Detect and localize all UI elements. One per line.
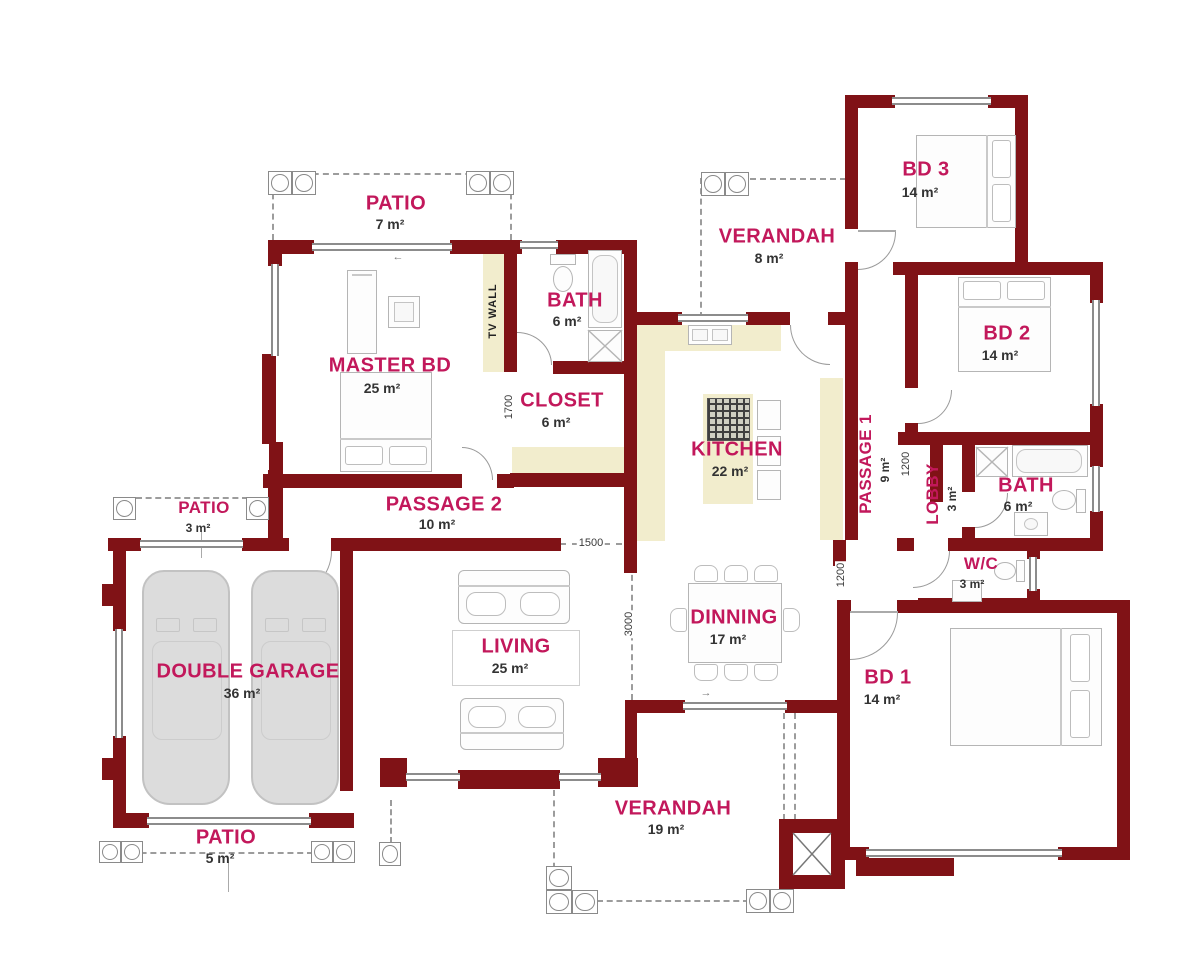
wall bbox=[905, 275, 918, 388]
wall bbox=[102, 584, 113, 606]
wall bbox=[309, 813, 354, 828]
bed-line bbox=[986, 135, 988, 228]
wall bbox=[897, 600, 1130, 613]
car-roof bbox=[152, 641, 221, 740]
stove-icon bbox=[707, 398, 750, 441]
wall bbox=[1090, 445, 1103, 467]
door-leaf bbox=[858, 230, 896, 232]
bathtub-inner bbox=[1016, 449, 1082, 473]
column-post bbox=[746, 889, 770, 913]
dimension-label: 1200 bbox=[900, 450, 912, 478]
toilet-icon bbox=[553, 266, 573, 292]
room-label-patio-bottom: PATIO bbox=[196, 827, 256, 850]
basin-bowl bbox=[1024, 518, 1038, 530]
window bbox=[406, 773, 460, 781]
wardrobe-line bbox=[352, 274, 372, 276]
wall bbox=[458, 770, 560, 789]
verandah-top-boundary bbox=[700, 178, 702, 318]
wall bbox=[746, 312, 790, 325]
door-arc bbox=[462, 447, 493, 480]
room-label-verandah-top: VERANDAH bbox=[719, 226, 836, 249]
wall bbox=[113, 551, 126, 631]
car bbox=[251, 570, 339, 805]
wall bbox=[1117, 600, 1130, 860]
wall bbox=[553, 361, 637, 374]
kitchen-counter-right bbox=[820, 378, 843, 540]
kitchen-counter-left bbox=[637, 351, 665, 541]
wall bbox=[1090, 275, 1103, 303]
room-area-lobby: 3 m² bbox=[945, 487, 959, 512]
room-area-bath2: 6 m² bbox=[1004, 498, 1033, 514]
column-post bbox=[246, 497, 269, 520]
wall bbox=[504, 252, 517, 372]
room-area-bd1: 14 m² bbox=[864, 691, 901, 707]
pillow bbox=[1007, 281, 1045, 300]
room-label-passage1: PASSAGE 1 bbox=[856, 414, 876, 514]
chair bbox=[694, 565, 718, 582]
sink-bowl bbox=[712, 329, 728, 341]
room-label-bd2: BD 2 bbox=[983, 323, 1030, 346]
wall bbox=[242, 538, 289, 551]
car-vent bbox=[156, 618, 180, 632]
window bbox=[1092, 466, 1100, 512]
sofa-cushion bbox=[520, 592, 560, 616]
arrow-left-icon: ← bbox=[393, 251, 404, 263]
chair bbox=[724, 664, 748, 681]
wall bbox=[845, 262, 858, 325]
column-post bbox=[770, 889, 794, 913]
chair bbox=[670, 608, 687, 632]
car bbox=[142, 570, 230, 805]
window bbox=[559, 773, 601, 781]
chair bbox=[724, 565, 748, 582]
wall bbox=[102, 758, 113, 780]
window bbox=[115, 629, 123, 738]
window bbox=[520, 241, 558, 249]
verandah-bottom-boundary bbox=[783, 713, 785, 820]
dim-1500-ext bbox=[604, 543, 622, 545]
window bbox=[678, 314, 748, 322]
wall bbox=[893, 262, 1103, 275]
room-area-verandah-bottom: 19 m² bbox=[648, 821, 685, 837]
room-label-bd3: BD 3 bbox=[902, 159, 949, 182]
wall bbox=[331, 538, 561, 551]
wall bbox=[948, 538, 1103, 551]
room-label-wc: W/C bbox=[964, 554, 998, 574]
wall bbox=[625, 312, 682, 325]
pillow bbox=[992, 140, 1011, 178]
chair bbox=[694, 664, 718, 681]
room-area-patio-top: 7 m² bbox=[376, 216, 405, 232]
sink-bowl bbox=[692, 329, 708, 341]
door-arc bbox=[858, 232, 896, 270]
window bbox=[312, 243, 452, 251]
room-label-passage2: PASSAGE 2 bbox=[386, 494, 503, 517]
column-post bbox=[292, 171, 316, 195]
wardrobe bbox=[347, 270, 377, 354]
wall bbox=[624, 240, 637, 573]
pillow bbox=[992, 184, 1011, 222]
verandah-bottom-boundary bbox=[794, 713, 796, 820]
wall bbox=[898, 432, 1103, 445]
door-arc bbox=[850, 613, 898, 660]
chair bbox=[754, 565, 778, 582]
room-area-living: 25 m² bbox=[492, 660, 529, 676]
window bbox=[271, 264, 279, 356]
room-label-garage: DOUBLE GARAGE bbox=[157, 661, 340, 684]
window bbox=[866, 849, 1062, 857]
dimension-label: 1500 bbox=[577, 537, 605, 549]
dim-1500-ext bbox=[560, 543, 578, 545]
column-post bbox=[572, 890, 598, 914]
closet-wardrobe bbox=[512, 447, 627, 473]
column-post bbox=[379, 842, 401, 866]
window bbox=[1092, 300, 1100, 406]
wall bbox=[268, 240, 314, 254]
floor-plan: ← → bbox=[0, 0, 1200, 971]
car-vent bbox=[302, 618, 326, 632]
room-label-living: LIVING bbox=[481, 636, 550, 659]
wall bbox=[113, 813, 149, 828]
chair bbox=[783, 608, 800, 632]
column-post bbox=[701, 172, 725, 196]
room-area-bath-master: 6 m² bbox=[553, 313, 582, 329]
wall bbox=[845, 95, 858, 229]
sofa-cushion bbox=[518, 706, 556, 728]
column-post bbox=[725, 172, 749, 196]
dimension-label: 3000 bbox=[623, 610, 635, 638]
bed-line bbox=[958, 306, 1051, 308]
room-area-patio-left: 3 m² bbox=[186, 521, 211, 535]
room-area-garage: 36 m² bbox=[224, 685, 261, 701]
wall bbox=[108, 538, 141, 551]
column-post bbox=[466, 171, 490, 195]
wall bbox=[897, 538, 914, 551]
window bbox=[1029, 557, 1037, 591]
car-roof bbox=[261, 641, 330, 740]
pillow bbox=[1070, 690, 1090, 738]
pillow bbox=[345, 446, 383, 465]
sofa-line bbox=[458, 585, 570, 587]
column-post bbox=[490, 171, 514, 195]
room-label-dinning: DINNING bbox=[690, 607, 777, 630]
sofa-cushion bbox=[466, 592, 506, 616]
room-label-closet: CLOSET bbox=[520, 390, 604, 413]
door-arc bbox=[790, 325, 830, 365]
shower-x-icon bbox=[588, 330, 622, 362]
room-label-verandah-bottom: VERANDAH bbox=[615, 798, 732, 821]
wall bbox=[962, 445, 975, 492]
dresser-inner bbox=[394, 302, 414, 322]
wall bbox=[625, 711, 637, 771]
pillow bbox=[389, 446, 427, 465]
room-area-verandah-top: 8 m² bbox=[755, 250, 784, 266]
chair bbox=[754, 664, 778, 681]
toilet-icon bbox=[1052, 490, 1076, 510]
room-area-master-bd: 25 m² bbox=[364, 380, 401, 396]
column-post bbox=[113, 497, 136, 520]
wall bbox=[1058, 847, 1130, 860]
column-post bbox=[99, 841, 121, 863]
door-arc bbox=[913, 551, 950, 588]
room-area-kitchen: 22 m² bbox=[712, 463, 749, 479]
arrow-right-icon: → bbox=[701, 687, 712, 699]
window bbox=[892, 97, 991, 105]
room-label-patio-top: PATIO bbox=[366, 193, 426, 216]
bed-line bbox=[340, 438, 432, 440]
column-post bbox=[268, 171, 292, 195]
wall bbox=[1015, 95, 1028, 275]
room-label-master-bd: MASTER BD bbox=[329, 355, 452, 378]
patio-bottom-tick bbox=[228, 862, 229, 892]
pillow bbox=[963, 281, 1001, 300]
verandah-bottom-boundary bbox=[390, 800, 392, 843]
verandah-bottom-boundary bbox=[597, 900, 749, 902]
room-area-patio-bottom: 5 m² bbox=[206, 850, 235, 866]
room-label-bd1: BD 1 bbox=[864, 667, 911, 690]
room-area-wc: 3 m² bbox=[960, 577, 985, 591]
room-area-closet: 6 m² bbox=[542, 414, 571, 430]
toilet-icon bbox=[550, 254, 576, 265]
room-area-bd3: 14 m² bbox=[902, 184, 939, 200]
wall bbox=[262, 354, 276, 444]
window bbox=[140, 540, 243, 548]
sofa-line bbox=[460, 732, 564, 734]
door-arc bbox=[517, 332, 552, 365]
room-label-bath-master: BATH bbox=[547, 290, 603, 313]
dimension-label: 1200 bbox=[835, 561, 847, 589]
stool bbox=[757, 400, 781, 430]
door-arc bbox=[918, 390, 952, 424]
toilet-icon bbox=[1016, 560, 1025, 582]
door-leaf bbox=[850, 611, 898, 613]
room-area-dinning: 17 m² bbox=[710, 631, 747, 647]
room-area-bd2: 14 m² bbox=[982, 347, 1019, 363]
column-post bbox=[121, 841, 143, 863]
sofa-cushion bbox=[468, 706, 506, 728]
dimension-label: 1700 bbox=[503, 393, 515, 421]
wall bbox=[856, 858, 954, 876]
room-area-passage2: 10 m² bbox=[419, 516, 456, 532]
room-label-kitchen: KITCHEN bbox=[691, 439, 783, 462]
tv-wall-label: TV WALL bbox=[487, 283, 499, 338]
column-post bbox=[546, 890, 572, 914]
garage-door bbox=[147, 817, 311, 825]
car-vent bbox=[265, 618, 289, 632]
wall bbox=[510, 473, 630, 487]
shower-x-icon bbox=[976, 447, 1008, 477]
car-vent bbox=[193, 618, 217, 632]
wall bbox=[340, 551, 353, 791]
toilet-icon bbox=[1076, 489, 1086, 513]
wall bbox=[263, 474, 462, 488]
room-area-passage1: 9 m² bbox=[878, 458, 892, 483]
room-label-bath2: BATH bbox=[998, 475, 1054, 498]
stool bbox=[757, 470, 781, 500]
sliding-door bbox=[683, 702, 787, 710]
room-label-lobby: LOBBY bbox=[923, 463, 943, 525]
room-label-patio-left: PATIO bbox=[178, 498, 229, 518]
column-post bbox=[333, 841, 355, 863]
column-post bbox=[546, 866, 572, 890]
column-post bbox=[311, 841, 333, 863]
wall bbox=[380, 758, 407, 787]
bed-line bbox=[1060, 628, 1062, 746]
pillow bbox=[1070, 634, 1090, 682]
column-x-icon bbox=[793, 833, 831, 875]
